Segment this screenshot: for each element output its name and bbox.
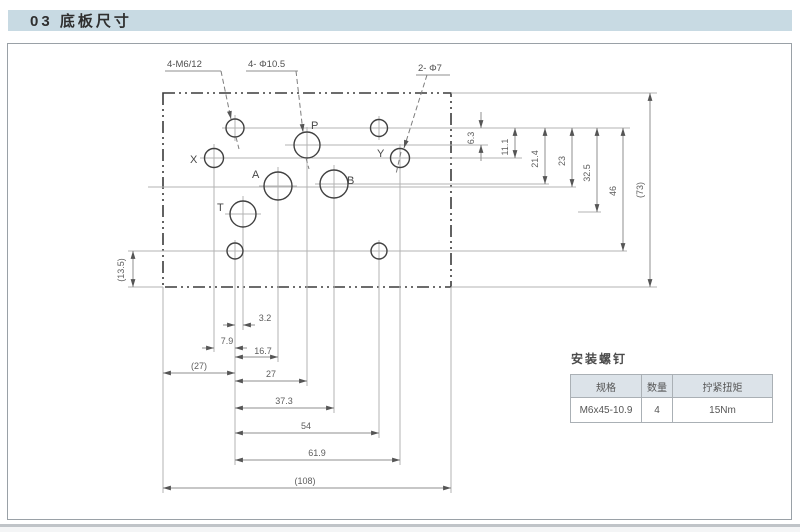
callout-mounting-holes: 4-M6/12 [167, 59, 202, 70]
port-letters: P A B T X Y [190, 120, 385, 214]
cell-spec: M6x45-10.9 [571, 398, 642, 423]
port-label-p: P [311, 120, 318, 132]
dim-61-9: 61.9 [308, 448, 326, 458]
table-header-row: 规格 数量 拧紧扭矩 [571, 375, 773, 398]
dim-46: 46 [608, 186, 618, 196]
dim-11-1: 11.1 [500, 139, 510, 156]
port-label-y: Y [377, 148, 385, 160]
cell-qty: 4 [642, 398, 673, 423]
cell-torque: 15Nm [673, 398, 773, 423]
dimension-lines [133, 93, 650, 488]
engineering-drawing: 6.3 11.1 21.4 23 32.5 46 (73) (13.5) 3.2… [0, 0, 800, 532]
col-header-spec: 规格 [571, 375, 642, 398]
dim-27-ref: (27) [191, 361, 207, 371]
col-header-torque: 拧紧扭矩 [673, 375, 773, 398]
table-row: M6x45-10.9 4 15Nm [571, 398, 773, 423]
callout-pilot-ports: 2- Φ7 [418, 63, 442, 74]
dim-16-7: 16.7 [254, 346, 272, 356]
page: 03 底板尺寸 [0, 0, 800, 532]
page-bottom-fill [0, 527, 800, 532]
col-header-qty: 数量 [642, 375, 673, 398]
dim-23: 23 [557, 156, 567, 166]
dim-32-5: 32.5 [582, 164, 592, 182]
dim-108: (108) [294, 476, 315, 486]
dimension-labels: 6.3 11.1 21.4 23 32.5 46 (73) (13.5) 3.2… [116, 132, 645, 486]
mounting-screw-panel: 安装螺钉 规格 数量 拧紧扭矩 M6x45-10.9 4 15Nm [570, 350, 772, 423]
port-label-x: X [190, 154, 198, 166]
dim-21-4: 21.4 [530, 150, 540, 168]
dim-73: (73) [635, 182, 645, 198]
port-label-a: A [252, 169, 260, 181]
mounting-screw-table: 规格 数量 拧紧扭矩 M6x45-10.9 4 15Nm [570, 374, 773, 423]
dim-37-3: 37.3 [275, 396, 293, 406]
port-label-t: T [217, 202, 224, 214]
dim-3-2: 3.2 [259, 313, 272, 323]
dim-27: 27 [266, 369, 276, 379]
mounting-screw-title: 安装螺钉 [571, 350, 772, 367]
dim-6-3: 6.3 [466, 132, 476, 145]
dim-54: 54 [301, 421, 311, 431]
callout-main-ports: 4- Φ10.5 [248, 59, 285, 70]
dim-13-5: (13.5) [116, 258, 126, 282]
dim-7-9: 7.9 [221, 336, 234, 346]
port-label-b: B [347, 175, 354, 187]
